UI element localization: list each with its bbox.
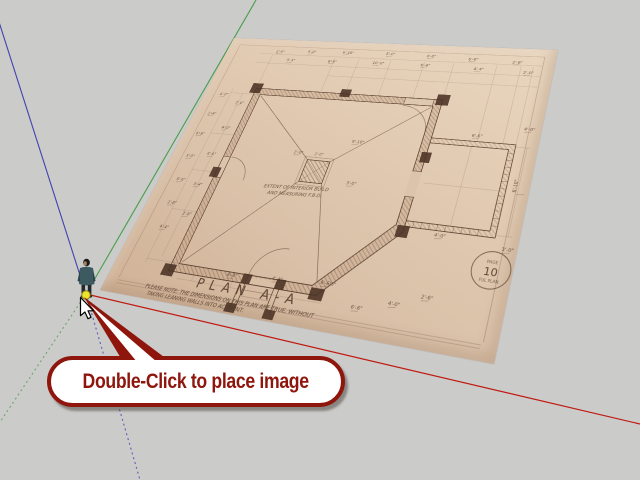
annex-room	[395, 137, 516, 238]
svg-text:6'-10": 6'-10"	[342, 51, 355, 55]
svg-text:4'-0": 4'-0"	[219, 92, 230, 97]
placed-plan-image[interactable]: 2'-6"4'-0"6'-10"5'-0"4'-0"6'-6"2'-8"3'-4…	[100, 38, 558, 364]
svg-text:3'-4": 3'-4"	[192, 181, 204, 187]
floor-plan-drawing: 2'-6"4'-0"6'-10"5'-0"4'-0"6'-6"2'-8"3'-4…	[100, 38, 558, 364]
svg-text:2'-0": 2'-0"	[234, 100, 245, 105]
svg-text:6'-6": 6'-6"	[206, 151, 217, 156]
sketchup-viewport[interactable]: 2'-6"4'-0"6'-10"5'-0"4'-0"6'-6"2'-8"3'-4…	[0, 0, 640, 480]
svg-text:4'-0": 4'-0"	[221, 125, 232, 130]
svg-text:4'-0": 4'-0"	[433, 232, 447, 239]
svg-text:6'-6": 6'-6"	[471, 133, 484, 139]
svg-text:3'-0": 3'-0"	[185, 153, 196, 158]
svg-text:6'-10": 6'-10"	[511, 178, 520, 192]
svg-text:10'-0": 10'-0"	[372, 61, 386, 66]
svg-text:2'-6": 2'-6"	[181, 211, 193, 217]
svg-text:3'-4": 3'-4"	[286, 58, 297, 62]
tooltip-callout: Double-Click to place image	[47, 356, 345, 407]
svg-text:2'-0": 2'-0"	[523, 70, 535, 75]
sheet-border	[116, 45, 545, 349]
svg-text:5'-0": 5'-0"	[385, 52, 396, 56]
central-column	[294, 156, 334, 187]
svg-text:2'-8": 2'-8"	[512, 60, 524, 65]
svg-text:2'-6": 2'-6"	[207, 111, 218, 116]
svg-text:6'-6": 6'-6"	[420, 63, 432, 68]
svg-text:6'-6": 6'-6"	[327, 59, 338, 63]
svg-text:2'-0": 2'-0"	[293, 150, 305, 156]
svg-text:4'-0": 4'-0"	[523, 127, 536, 133]
svg-text:4'-4": 4'-4"	[158, 224, 170, 231]
svg-text:2'-6": 2'-6"	[275, 50, 286, 54]
svg-text:4'-0": 4'-0"	[307, 50, 318, 54]
svg-text:6'-6": 6'-6"	[195, 131, 206, 136]
tooltip-text: Double-Click to place image	[83, 370, 309, 394]
svg-text:4'-0": 4'-0"	[426, 54, 437, 59]
svg-text:4'-4": 4'-4"	[473, 67, 485, 72]
svg-text:3'-0": 3'-0"	[345, 180, 358, 186]
svg-text:6'-6": 6'-6"	[468, 57, 480, 62]
svg-text:3'-0": 3'-0"	[501, 246, 515, 254]
svg-text:2'-0": 2'-0"	[313, 152, 325, 158]
svg-text:9'-10": 9'-10"	[351, 139, 366, 145]
svg-text:6'-6": 6'-6"	[175, 176, 187, 182]
svg-text:2'-8": 2'-8"	[166, 199, 178, 205]
